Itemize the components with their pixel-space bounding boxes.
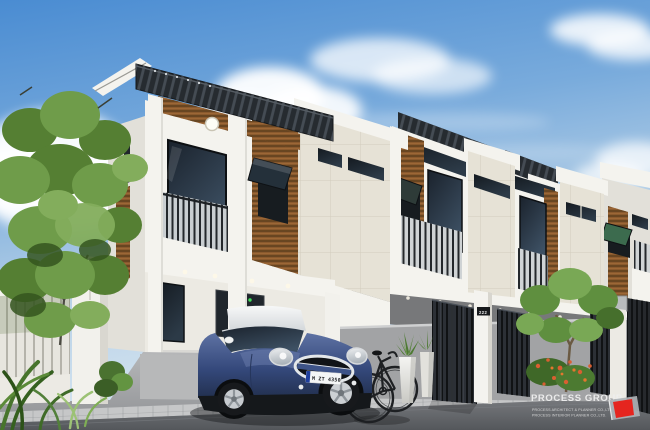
- door-led-indicator: [248, 298, 251, 301]
- logo-red-square-icon: [613, 399, 634, 418]
- watermark-subtitle-1: PROCESS ARCHITECT & PLANNER CO.,LTD.: [532, 408, 614, 412]
- watermark-subtitle-2: PROCESS INTERIOR PLANNER CO.,LTD.: [532, 414, 607, 418]
- architectural-rendering: 222: [0, 0, 650, 430]
- soffit-downlight: [206, 118, 219, 131]
- gate-pillar-a: 222: [474, 290, 492, 404]
- license-plate: M ZT 4350: [306, 371, 342, 385]
- fog-light-left: [299, 385, 304, 390]
- fog-light-right: [352, 381, 357, 386]
- folding-gate-1: [428, 300, 477, 414]
- house-number: 222: [479, 310, 487, 315]
- bicycle-saddle: [372, 351, 382, 356]
- process-group-logo: [609, 396, 640, 420]
- column-unit-1-left: [148, 94, 163, 354]
- side-mirror: [225, 337, 234, 343]
- wheel-rear: [218, 383, 251, 416]
